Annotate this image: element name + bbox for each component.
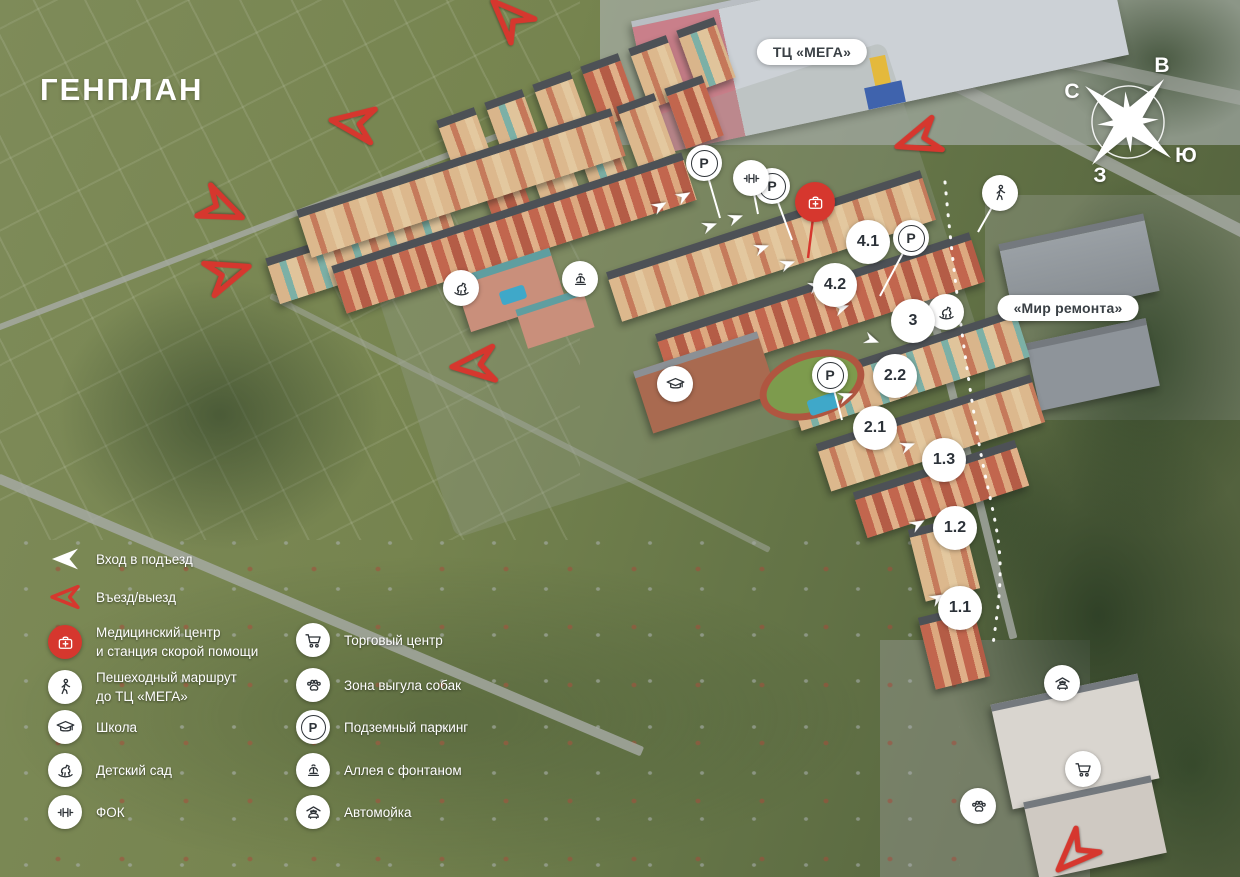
rocking-horse-icon (451, 278, 472, 299)
legend-label: Вход в подъезд (96, 550, 193, 569)
dog-walking-marker (960, 788, 996, 824)
legend-item-entry-exit: Въезд/выезд (48, 584, 176, 610)
legend-label: Детский сад (96, 761, 172, 780)
pedestrian-route-icon (48, 670, 82, 704)
parking-marker: P (686, 145, 722, 181)
legend-item-gym: ФОК (48, 795, 125, 829)
fountain-alley-marker (562, 261, 598, 297)
badge-label: 2.2 (884, 367, 906, 385)
badge-label: 1.3 (933, 451, 955, 469)
kindergarten-marker (443, 270, 479, 306)
fountain-icon (296, 753, 330, 787)
entry-exit-arrow (322, 98, 381, 147)
car-wash-icon (1052, 673, 1073, 694)
legend-label: Медицинский центри станция скорой помощи (96, 623, 258, 661)
building-badge-1-2[interactable]: 1.2 (933, 506, 977, 550)
car-wash-marker (1044, 665, 1080, 701)
dog-paw-icon (296, 668, 330, 702)
entrance-triangle-icon (48, 546, 82, 572)
legend-label: Подземный паркинг (344, 718, 468, 737)
parking-icon: P (296, 710, 330, 744)
gym-marker (733, 160, 769, 196)
pedestrian-route-marker (982, 175, 1018, 211)
gym-icon (48, 795, 82, 829)
fountain-icon (570, 269, 591, 290)
building-badge-1-1[interactable]: 1.1 (938, 586, 982, 630)
building-badge-1-3[interactable]: 1.3 (922, 438, 966, 482)
parking-marker: P (893, 220, 929, 256)
kindergarten-icon (48, 753, 82, 787)
parking-symbol: P (691, 150, 718, 177)
school-icon (48, 710, 82, 744)
rocking-horse-icon (936, 302, 957, 323)
building-badge-4-2[interactable]: 4.2 (813, 263, 857, 307)
building-badge-2-1[interactable]: 2.1 (853, 406, 897, 450)
building-badge-2-2[interactable]: 2.2 (873, 354, 917, 398)
legend-label: Пешеходный маршрутдо ТЦ «МЕГА» (96, 668, 237, 706)
legend-label: ФОК (96, 803, 125, 822)
legend-item-entrance: Вход в подъезд (48, 546, 193, 572)
compass-east: В (1154, 54, 1169, 78)
legend-label: Школа (96, 718, 137, 737)
shopping-cart-icon (1073, 759, 1094, 780)
legend-label: Торговый центр (344, 631, 443, 650)
dumbbell-icon (741, 168, 762, 189)
legend-item-kindergarten: Детский сад (48, 753, 172, 787)
legend-item-underground-parking: P Подземный паркинг (296, 710, 468, 744)
page-title: ГЕНПЛАН (40, 72, 203, 108)
legend-label: Аллея с фонтаном (344, 761, 462, 780)
entry-exit-arrow-icon (48, 584, 82, 610)
genplan-map: P P P P 4.1 4.2 3 2.2 2.1 1.3 1.2 1.1 ГЕ… (0, 0, 1240, 877)
legend-label: Въезд/выезд (96, 588, 176, 607)
badge-label: 1.2 (944, 519, 966, 537)
legend-label: Зона выгула собак (344, 676, 461, 695)
legend-label: Автомойка (344, 803, 411, 822)
parking-symbol: P (898, 225, 925, 252)
legend-item-car-wash: Автомойка (296, 795, 411, 829)
parking-marker: P (812, 357, 848, 393)
medical-bag-icon (805, 192, 826, 213)
shopping-cart-icon (296, 623, 330, 657)
legend-item-school: Школа (48, 710, 137, 744)
car-wash-icon (296, 795, 330, 829)
compass-south: Ю (1175, 144, 1197, 168)
medical-center-marker (795, 182, 835, 222)
badge-label: 1.1 (949, 599, 971, 617)
parking-symbol: P (817, 362, 844, 389)
badge-label: 4.2 (824, 276, 846, 294)
badge-label: 3 (909, 312, 918, 330)
legend-item-fountain-alley: Аллея с фонтаном (296, 753, 462, 787)
badge-label: 2.1 (864, 419, 886, 437)
graduation-cap-icon (665, 374, 686, 395)
building-badge-4-1[interactable]: 4.1 (846, 220, 890, 264)
entry-exit-arrow (444, 342, 501, 389)
compass-rose: В С Ю З (1058, 48, 1198, 188)
compass-north: С (1064, 80, 1079, 104)
medical-center-icon (48, 625, 82, 659)
mega-mall-label: ТЦ «МЕГА» (757, 39, 867, 65)
school-marker (657, 366, 693, 402)
dog-paw-icon (968, 796, 989, 817)
mir-remonta-label: «Мир ремонта» (998, 295, 1139, 321)
building-badge-3[interactable]: 3 (891, 299, 935, 343)
compass-west: З (1093, 164, 1106, 188)
shopping-center-marker (1065, 751, 1101, 787)
legend-item-medical: Медицинский центри станция скорой помощи (48, 623, 258, 661)
legend-item-pedestrian-route: Пешеходный маршрутдо ТЦ «МЕГА» (48, 668, 237, 706)
walking-person-icon (990, 183, 1011, 204)
badge-label: 4.1 (857, 233, 879, 251)
legend-item-dog-walking: Зона выгула собак (296, 668, 461, 702)
legend-item-shopping-center: Торговый центр (296, 623, 443, 657)
